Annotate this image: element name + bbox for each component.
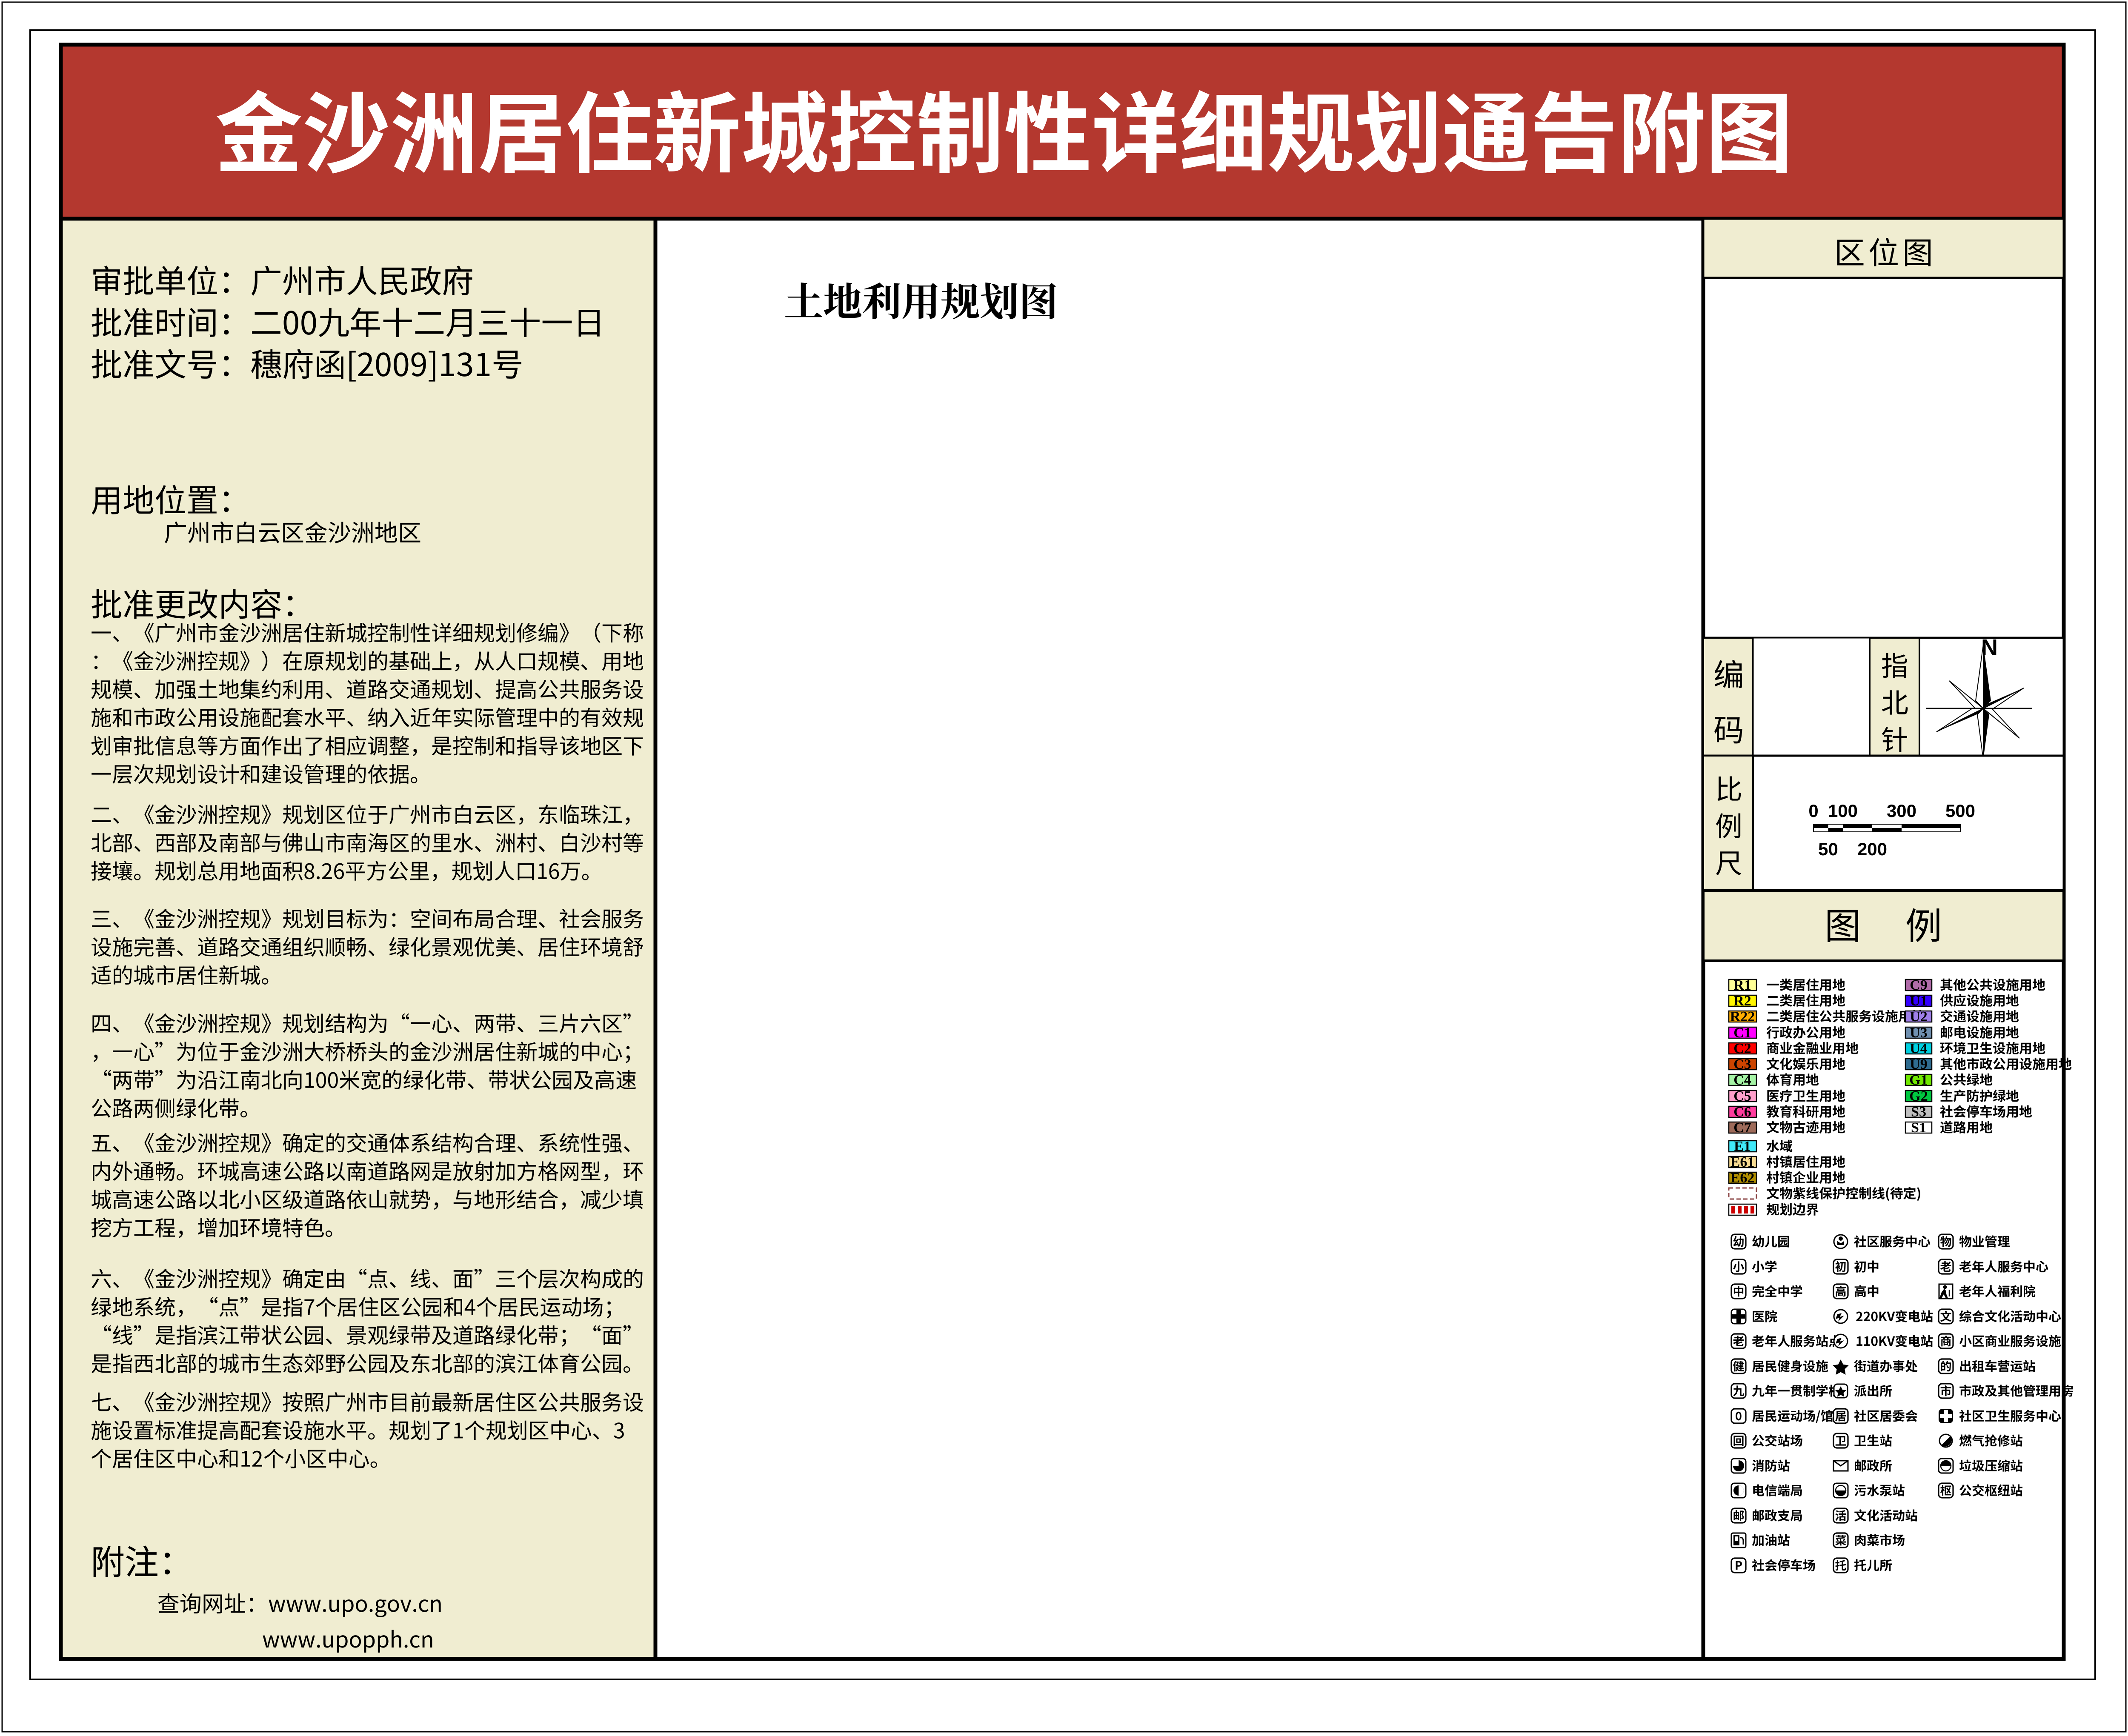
svg-text:S1: S1 <box>1911 1120 1926 1136</box>
svg-text:E1: E1 <box>1734 1139 1751 1154</box>
svg-text:200: 200 <box>1857 839 1887 859</box>
svg-text:50: 50 <box>1818 839 1838 859</box>
svg-text:U4: U4 <box>1910 1041 1928 1056</box>
svg-text:S3: S3 <box>1911 1104 1926 1120</box>
svg-text:R22: R22 <box>1730 1009 1755 1025</box>
svg-text:G1: G1 <box>1909 1072 1928 1088</box>
svg-text:C9: C9 <box>1910 977 1928 993</box>
svg-text:C5: C5 <box>1733 1088 1751 1104</box>
svg-text:U9: U9 <box>1910 1056 1928 1072</box>
svg-text:U3: U3 <box>1910 1025 1928 1041</box>
svg-text:U2: U2 <box>1910 1009 1928 1025</box>
svg-text:C3: C3 <box>1733 1056 1751 1072</box>
svg-text:U1: U1 <box>1910 993 1928 1009</box>
svg-text:300: 300 <box>1887 801 1916 821</box>
svg-text:C1: C1 <box>1733 1025 1751 1041</box>
svg-text:100: 100 <box>1828 801 1858 821</box>
svg-text:0: 0 <box>1808 801 1818 821</box>
svg-text:C2: C2 <box>1733 1041 1751 1056</box>
svg-text:G2: G2 <box>1909 1088 1928 1104</box>
svg-text:E61: E61 <box>1730 1154 1755 1170</box>
svg-text:E62: E62 <box>1730 1170 1755 1186</box>
svg-text:C7: C7 <box>1733 1120 1751 1136</box>
svg-text:R2: R2 <box>1733 993 1751 1009</box>
svg-text:C6: C6 <box>1733 1104 1751 1120</box>
svg-text:R1: R1 <box>1733 977 1751 993</box>
svg-text:C4: C4 <box>1733 1072 1751 1088</box>
svg-text:500: 500 <box>1945 801 1975 821</box>
